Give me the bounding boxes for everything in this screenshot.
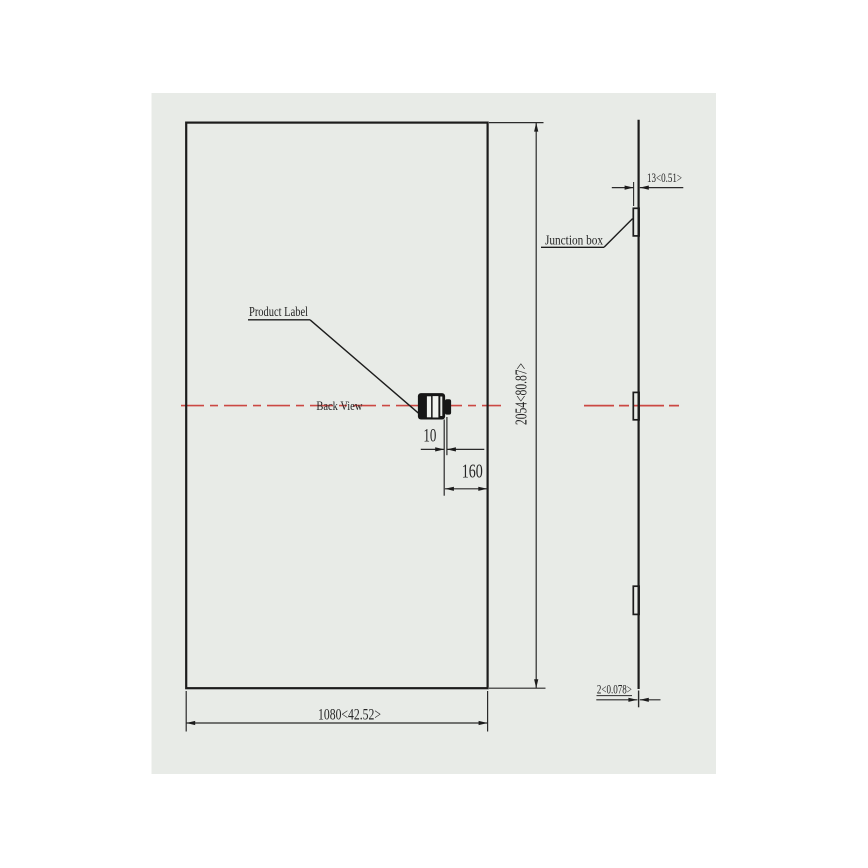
svg-text:160: 160 — [462, 461, 483, 483]
svg-text:1080<42.52>: 1080<42.52> — [318, 707, 381, 724]
svg-text:Product Label: Product Label — [249, 304, 308, 319]
svg-text:13<0.51>: 13<0.51> — [647, 170, 682, 185]
svg-text:Junction box: Junction box — [545, 234, 603, 249]
svg-text:Back View: Back View — [316, 398, 362, 413]
svg-text:10: 10 — [423, 425, 436, 446]
svg-text:2054<80.87>: 2054<80.87> — [512, 363, 531, 425]
svg-text:2<0.078>: 2<0.078> — [597, 682, 632, 696]
